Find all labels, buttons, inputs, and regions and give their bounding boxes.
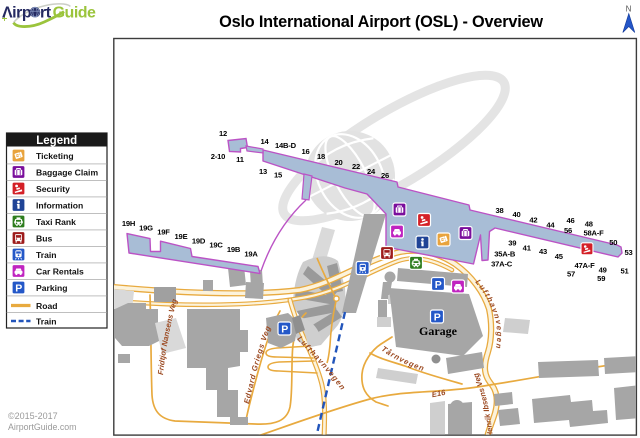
svg-text:16: 16	[301, 147, 309, 156]
svg-text:rt: rt	[40, 4, 52, 21]
svg-text:53: 53	[624, 248, 632, 257]
svg-text:12: 12	[219, 129, 227, 138]
svg-text:48: 48	[585, 220, 593, 229]
svg-text:19D: 19D	[192, 236, 206, 245]
svg-text:58A-F: 58A-F	[583, 229, 604, 238]
svg-text:19H: 19H	[122, 219, 135, 228]
svg-text:19B: 19B	[227, 245, 241, 254]
svg-text:AirportGuide.com: AirportGuide.com	[8, 422, 76, 432]
svg-text:Road: Road	[36, 301, 57, 311]
svg-text:Legend: Legend	[36, 135, 77, 147]
svg-text:57: 57	[567, 270, 575, 279]
svg-text:N: N	[626, 5, 632, 14]
svg-text:Car Rentals: Car Rentals	[36, 266, 84, 276]
svg-text:Oslo International Airport (OS: Oslo International Airport (OSL) - Overv…	[219, 13, 543, 31]
svg-text:©2015-2017: ©2015-2017	[8, 411, 58, 421]
svg-text:20: 20	[334, 158, 342, 167]
svg-text:50: 50	[609, 238, 617, 247]
svg-text:18: 18	[317, 152, 325, 161]
svg-text:Bus: Bus	[36, 233, 52, 243]
svg-text:41: 41	[523, 244, 532, 253]
svg-text:56: 56	[564, 226, 572, 235]
svg-text:Baggage Claim: Baggage Claim	[36, 167, 98, 177]
svg-text:40: 40	[512, 210, 520, 219]
svg-text:59: 59	[597, 274, 605, 283]
svg-text:Guide: Guide	[53, 4, 96, 21]
svg-text:38: 38	[495, 206, 503, 215]
svg-text:26: 26	[381, 171, 389, 180]
svg-text:Ticketing: Ticketing	[36, 151, 74, 161]
svg-text:Train: Train	[36, 250, 57, 260]
svg-text:47A-F: 47A-F	[574, 261, 595, 270]
svg-text:15: 15	[274, 171, 283, 180]
svg-text:Security: Security	[36, 184, 70, 194]
svg-text:Train: Train	[36, 316, 57, 326]
svg-text:14B-D: 14B-D	[275, 141, 297, 150]
svg-text:2-10: 2-10	[211, 152, 225, 161]
svg-text:13: 13	[259, 167, 267, 176]
svg-text:19F: 19F	[157, 228, 170, 237]
svg-text:39: 39	[508, 239, 516, 248]
svg-text:35A-B: 35A-B	[494, 250, 516, 259]
svg-text:51: 51	[620, 267, 629, 276]
svg-text:46: 46	[566, 216, 574, 225]
svg-text:19C: 19C	[209, 241, 223, 250]
svg-text:44: 44	[546, 221, 555, 230]
svg-text:14: 14	[260, 137, 269, 146]
svg-text:43: 43	[539, 247, 547, 256]
svg-text:Λirp: Λirp	[2, 4, 32, 21]
svg-text:19E: 19E	[175, 232, 188, 241]
svg-text:Information: Information	[36, 200, 83, 210]
svg-text:22: 22	[352, 162, 360, 171]
svg-text:19A: 19A	[244, 249, 258, 258]
svg-text:Parking: Parking	[36, 283, 68, 293]
svg-text:19G: 19G	[139, 223, 153, 232]
svg-text:Garage: Garage	[419, 324, 458, 338]
svg-text:42: 42	[529, 216, 537, 225]
svg-text:45: 45	[555, 252, 564, 261]
svg-text:24: 24	[367, 167, 376, 176]
svg-text:11: 11	[236, 155, 245, 164]
svg-text:Taxi Rank: Taxi Rank	[36, 217, 76, 227]
svg-text:37A-C: 37A-C	[491, 259, 513, 268]
